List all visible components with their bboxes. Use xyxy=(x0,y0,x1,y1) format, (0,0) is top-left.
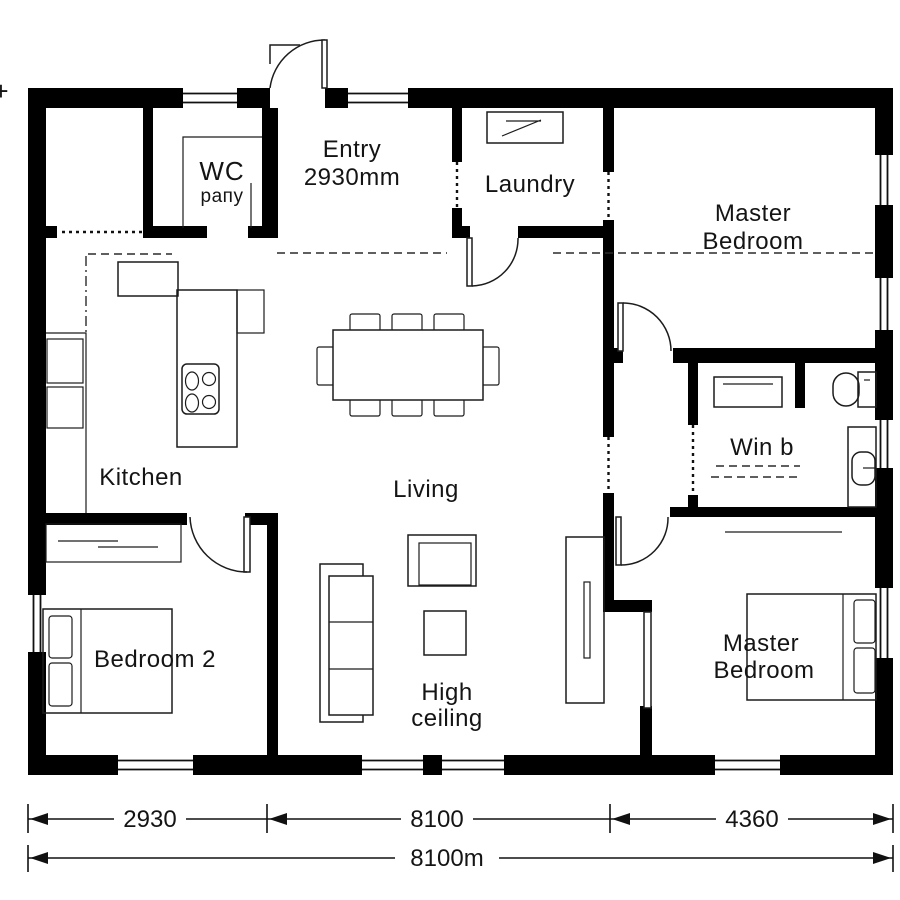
dimension-segment-1: 2930 xyxy=(123,806,176,833)
high-ceiling-label-2: ceiling xyxy=(411,705,483,732)
bathtub xyxy=(714,377,782,407)
edge-plus-mark: + xyxy=(0,76,9,106)
master-bedroom-bottom-door xyxy=(644,612,651,708)
high-ceiling-label-1: High xyxy=(421,679,472,706)
tv-table xyxy=(408,535,476,586)
tv-cabinet xyxy=(566,537,604,703)
wc-note: paпy xyxy=(201,186,244,207)
win-b-label: Win b xyxy=(730,434,794,461)
kitchen-label: Kitchen xyxy=(99,464,183,491)
entry-label: Entry xyxy=(323,136,382,163)
fridge xyxy=(118,262,178,296)
entry-door-opening xyxy=(270,88,325,108)
sink-vanity xyxy=(848,427,876,507)
laundry-label: Laundry xyxy=(485,171,575,198)
ceiling-break-lines xyxy=(86,253,873,332)
bedroom-2-door xyxy=(190,517,250,572)
dimension-row-total: 8100m xyxy=(28,844,893,872)
bedroom-2-wardrobe xyxy=(46,524,181,562)
entry-door xyxy=(270,40,327,88)
dining-table xyxy=(317,314,499,416)
dimension-row-segments: 2930 8100 4360 xyxy=(28,804,893,833)
living-label: Living xyxy=(393,476,459,503)
floor-plan: WC paпy Entry 2930mm Laundry Master Bedr… xyxy=(0,0,900,900)
laundry-door xyxy=(467,238,518,286)
kitchen-island xyxy=(177,290,264,447)
master-bottom-label-1: Master xyxy=(723,630,799,657)
dimension-segment-3: 4360 xyxy=(725,806,778,833)
bedroom-2-label: Bedroom 2 xyxy=(94,646,216,673)
wc-label: WC xyxy=(199,156,244,186)
master-bottom-label-2: Bedroom xyxy=(714,657,815,684)
stove xyxy=(182,364,219,414)
kitchen-counter xyxy=(46,333,86,513)
side-table xyxy=(424,611,466,655)
sofa xyxy=(320,564,373,722)
wall-openings xyxy=(62,162,693,495)
master-bedroom-top-door xyxy=(618,303,671,351)
bathroom-floor-marks xyxy=(711,466,800,477)
entry-dimension: 2930mm xyxy=(304,164,400,191)
master-top-label-1: Master xyxy=(715,200,791,227)
dimension-total: 8100m xyxy=(410,845,483,872)
dimension-segment-2: 8100 xyxy=(410,806,463,833)
washing-machine xyxy=(487,112,563,143)
bathroom-door xyxy=(616,517,668,565)
master-top-label-2: Bedroom xyxy=(703,228,804,255)
toilet xyxy=(833,372,876,407)
floor-plan-svg: WC paпy Entry 2930mm Laundry Master Bedr… xyxy=(0,0,900,900)
